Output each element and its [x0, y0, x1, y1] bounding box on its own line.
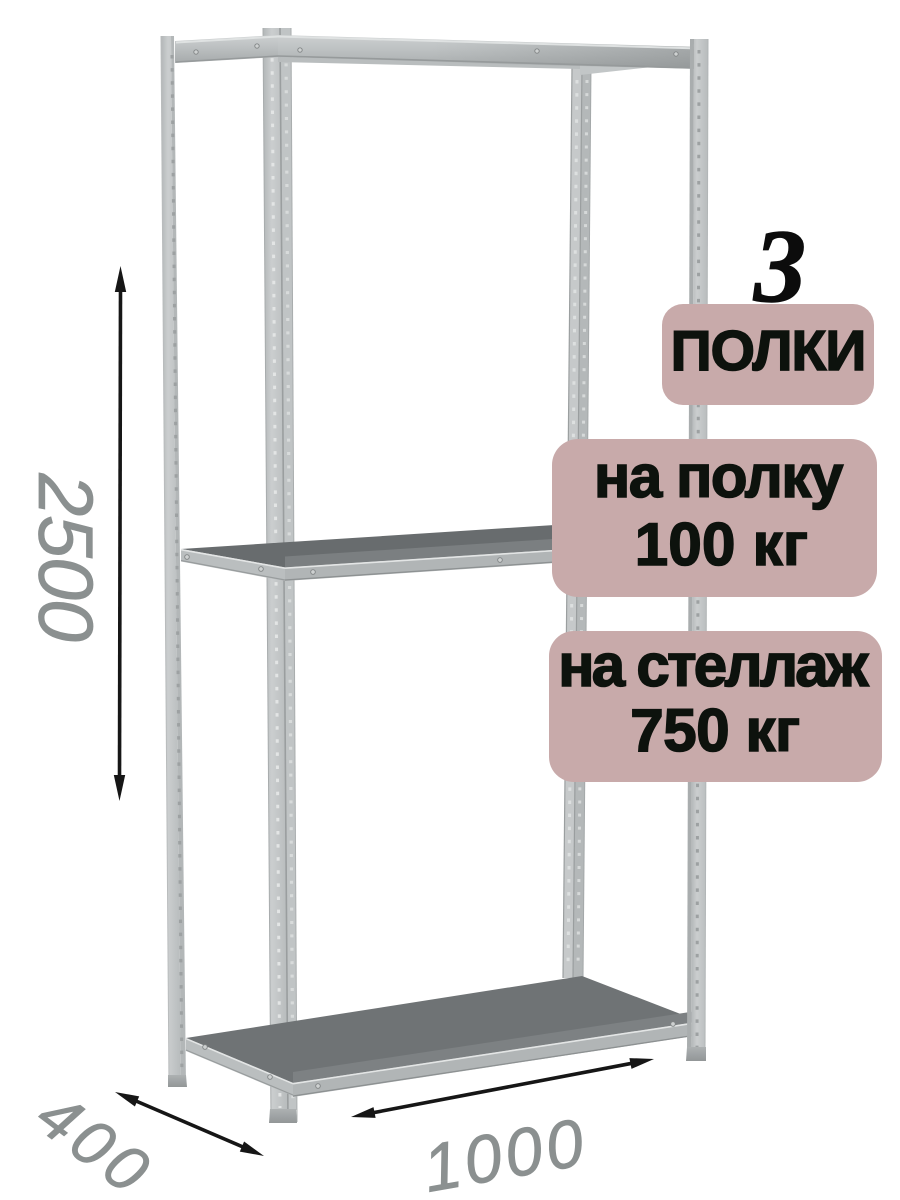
svg-text:2500: 2500: [22, 472, 108, 641]
svg-text:750 кг: 750 кг: [630, 697, 799, 764]
svg-text:ПОЛКИ: ПОЛКИ: [671, 319, 866, 383]
svg-text:100 кг: 100 кг: [635, 511, 809, 578]
svg-text:400: 400: [24, 1078, 167, 1200]
svg-text:на стеллаж: на стеллаж: [558, 632, 870, 699]
svg-text:1000: 1000: [417, 1104, 593, 1200]
svg-text:на полку: на полку: [594, 443, 844, 510]
